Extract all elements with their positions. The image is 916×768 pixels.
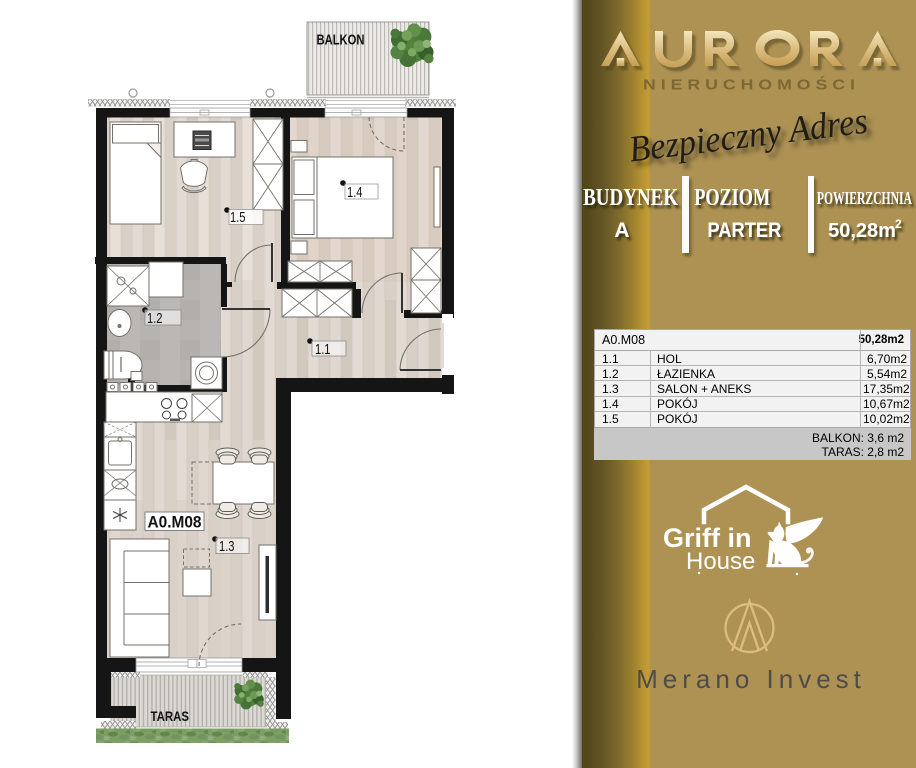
svg-text:50,28m: 50,28m [828, 220, 896, 242]
svg-text:A0.M08: A0.M08 [148, 513, 202, 532]
svg-text:BALKON: BALKON [317, 32, 365, 49]
svg-text:2: 2 [895, 217, 902, 231]
svg-text:POWIERZCHNIA: POWIERZCHNIA [817, 188, 912, 208]
svg-text:BUDYNEK: BUDYNEK [583, 185, 678, 211]
svg-text:N I E R U C H O M O Ś C I: N I E R U C H O M O Ś C I [643, 76, 855, 94]
svg-text:House: House [686, 548, 755, 575]
svg-text:1.1: 1.1 [315, 341, 331, 358]
svg-text:1.3: 1.3 [219, 538, 235, 555]
svg-text:1.5: 1.5 [230, 209, 246, 226]
svg-text:TARAS: TARAS [151, 708, 190, 724]
svg-text:1.2: 1.2 [147, 310, 163, 327]
svg-text:A: A [614, 219, 629, 242]
svg-text:1.4: 1.4 [347, 184, 363, 201]
svg-text:POZIOM: POZIOM [694, 185, 770, 211]
svg-text:PARTER: PARTER [707, 219, 781, 242]
